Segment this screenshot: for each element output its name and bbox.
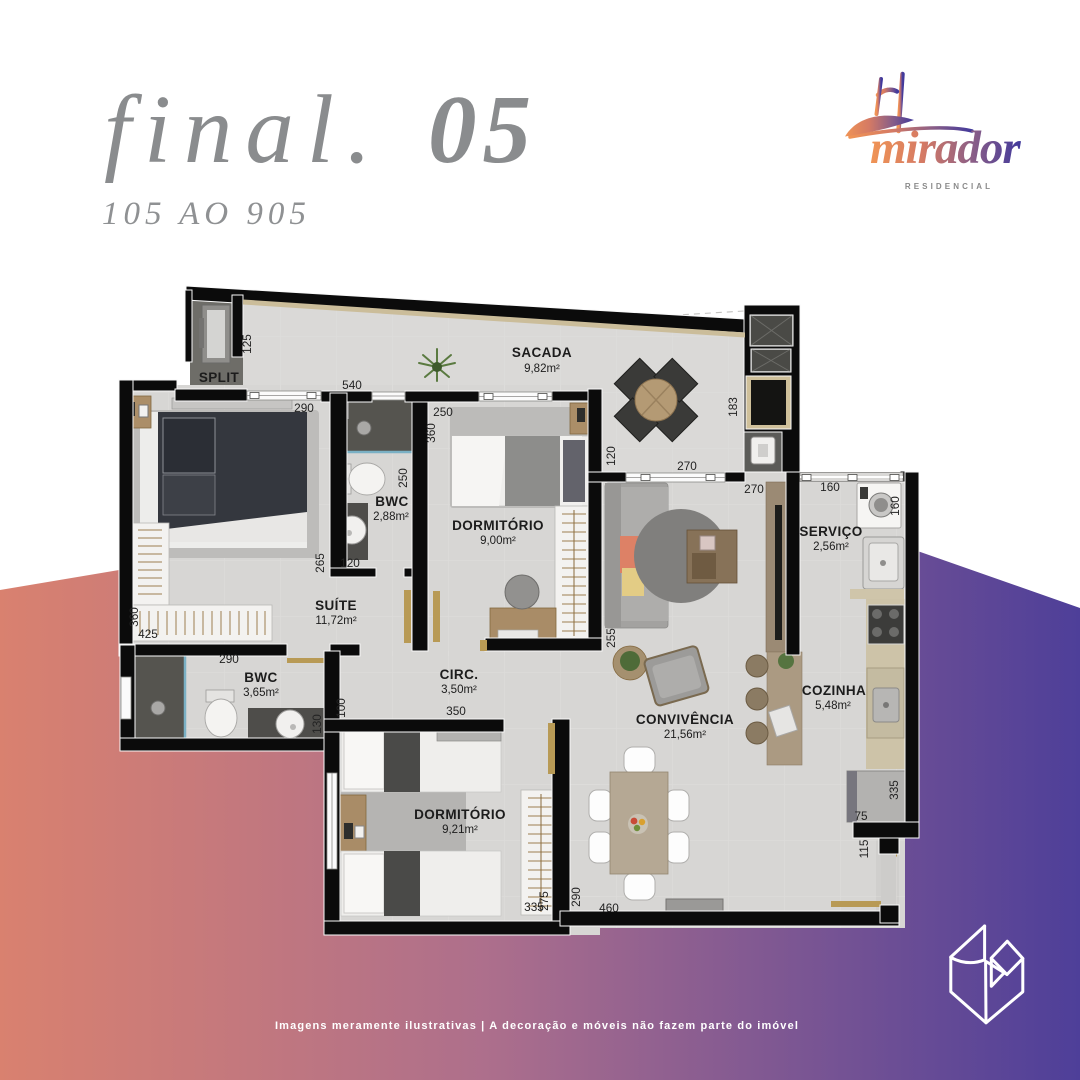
svg-text:100: 100 — [334, 698, 348, 718]
svg-text:2,88m²: 2,88m² — [373, 511, 409, 523]
svg-text:RESIDENCIAL: RESIDENCIAL — [905, 182, 993, 191]
svg-text:SUÍTE: SUÍTE — [315, 598, 357, 613]
svg-text:425: 425 — [138, 627, 158, 641]
svg-text:250: 250 — [396, 468, 410, 488]
svg-text:9,82m²: 9,82m² — [524, 363, 560, 375]
svg-text:270: 270 — [677, 459, 697, 473]
svg-text:BWC: BWC — [375, 494, 408, 509]
svg-text:183: 183 — [726, 397, 740, 417]
svg-text:255: 255 — [604, 628, 618, 648]
svg-text:265: 265 — [313, 553, 327, 573]
svg-text:120: 120 — [604, 446, 618, 466]
svg-text:SERVIÇO: SERVIÇO — [799, 524, 862, 539]
svg-text:130: 130 — [310, 714, 324, 734]
svg-text:SPLIT: SPLIT — [199, 370, 240, 385]
svg-text:9,00m²: 9,00m² — [480, 535, 516, 547]
svg-text:460: 460 — [599, 901, 619, 915]
svg-text:9,21m²: 9,21m² — [442, 824, 478, 836]
svg-text:160: 160 — [888, 496, 902, 516]
svg-text:Imagens meramente ilustrativas: Imagens meramente ilustrativas | A decor… — [275, 1020, 799, 1032]
svg-text:250: 250 — [433, 405, 453, 419]
svg-text:335: 335 — [887, 780, 901, 800]
svg-text:350: 350 — [446, 704, 466, 718]
svg-text:160: 160 — [820, 480, 840, 494]
svg-text:SACADA: SACADA — [512, 345, 572, 360]
svg-text:11,72m²: 11,72m² — [315, 615, 357, 627]
svg-text:290: 290 — [219, 652, 239, 666]
svg-text:115: 115 — [857, 839, 871, 858]
svg-text:275: 275 — [537, 891, 551, 911]
svg-text:125: 125 — [240, 334, 254, 354]
svg-text:360: 360 — [127, 607, 141, 627]
svg-text:75: 75 — [854, 809, 868, 823]
svg-text:540: 540 — [342, 378, 362, 392]
svg-text:290: 290 — [569, 887, 583, 907]
svg-text:3,65m²: 3,65m² — [243, 687, 279, 699]
svg-text:COZINHA: COZINHA — [802, 683, 866, 698]
svg-text:360: 360 — [424, 423, 438, 443]
svg-text:CONVIVÊNCIA: CONVIVÊNCIA — [636, 712, 734, 727]
svg-text:2,56m²: 2,56m² — [813, 541, 849, 553]
svg-text:mirador: mirador — [870, 122, 1021, 174]
svg-text:21,56m²: 21,56m² — [664, 729, 706, 741]
svg-text:DORMITÓRIO: DORMITÓRIO — [452, 518, 544, 533]
svg-text:270: 270 — [744, 482, 764, 496]
svg-text:05: 05 — [428, 76, 537, 183]
svg-text:BWC: BWC — [244, 670, 277, 685]
svg-text:final.: final. — [104, 76, 384, 183]
svg-text:290: 290 — [294, 401, 314, 415]
svg-text:CIRC.: CIRC. — [440, 667, 479, 682]
svg-text:105 AO 905: 105 AO 905 — [102, 196, 311, 232]
svg-text:3,50m²: 3,50m² — [441, 684, 477, 696]
svg-text:5,48m²: 5,48m² — [815, 700, 851, 712]
svg-text:120: 120 — [340, 556, 360, 570]
svg-text:DORMITÓRIO: DORMITÓRIO — [414, 807, 506, 822]
